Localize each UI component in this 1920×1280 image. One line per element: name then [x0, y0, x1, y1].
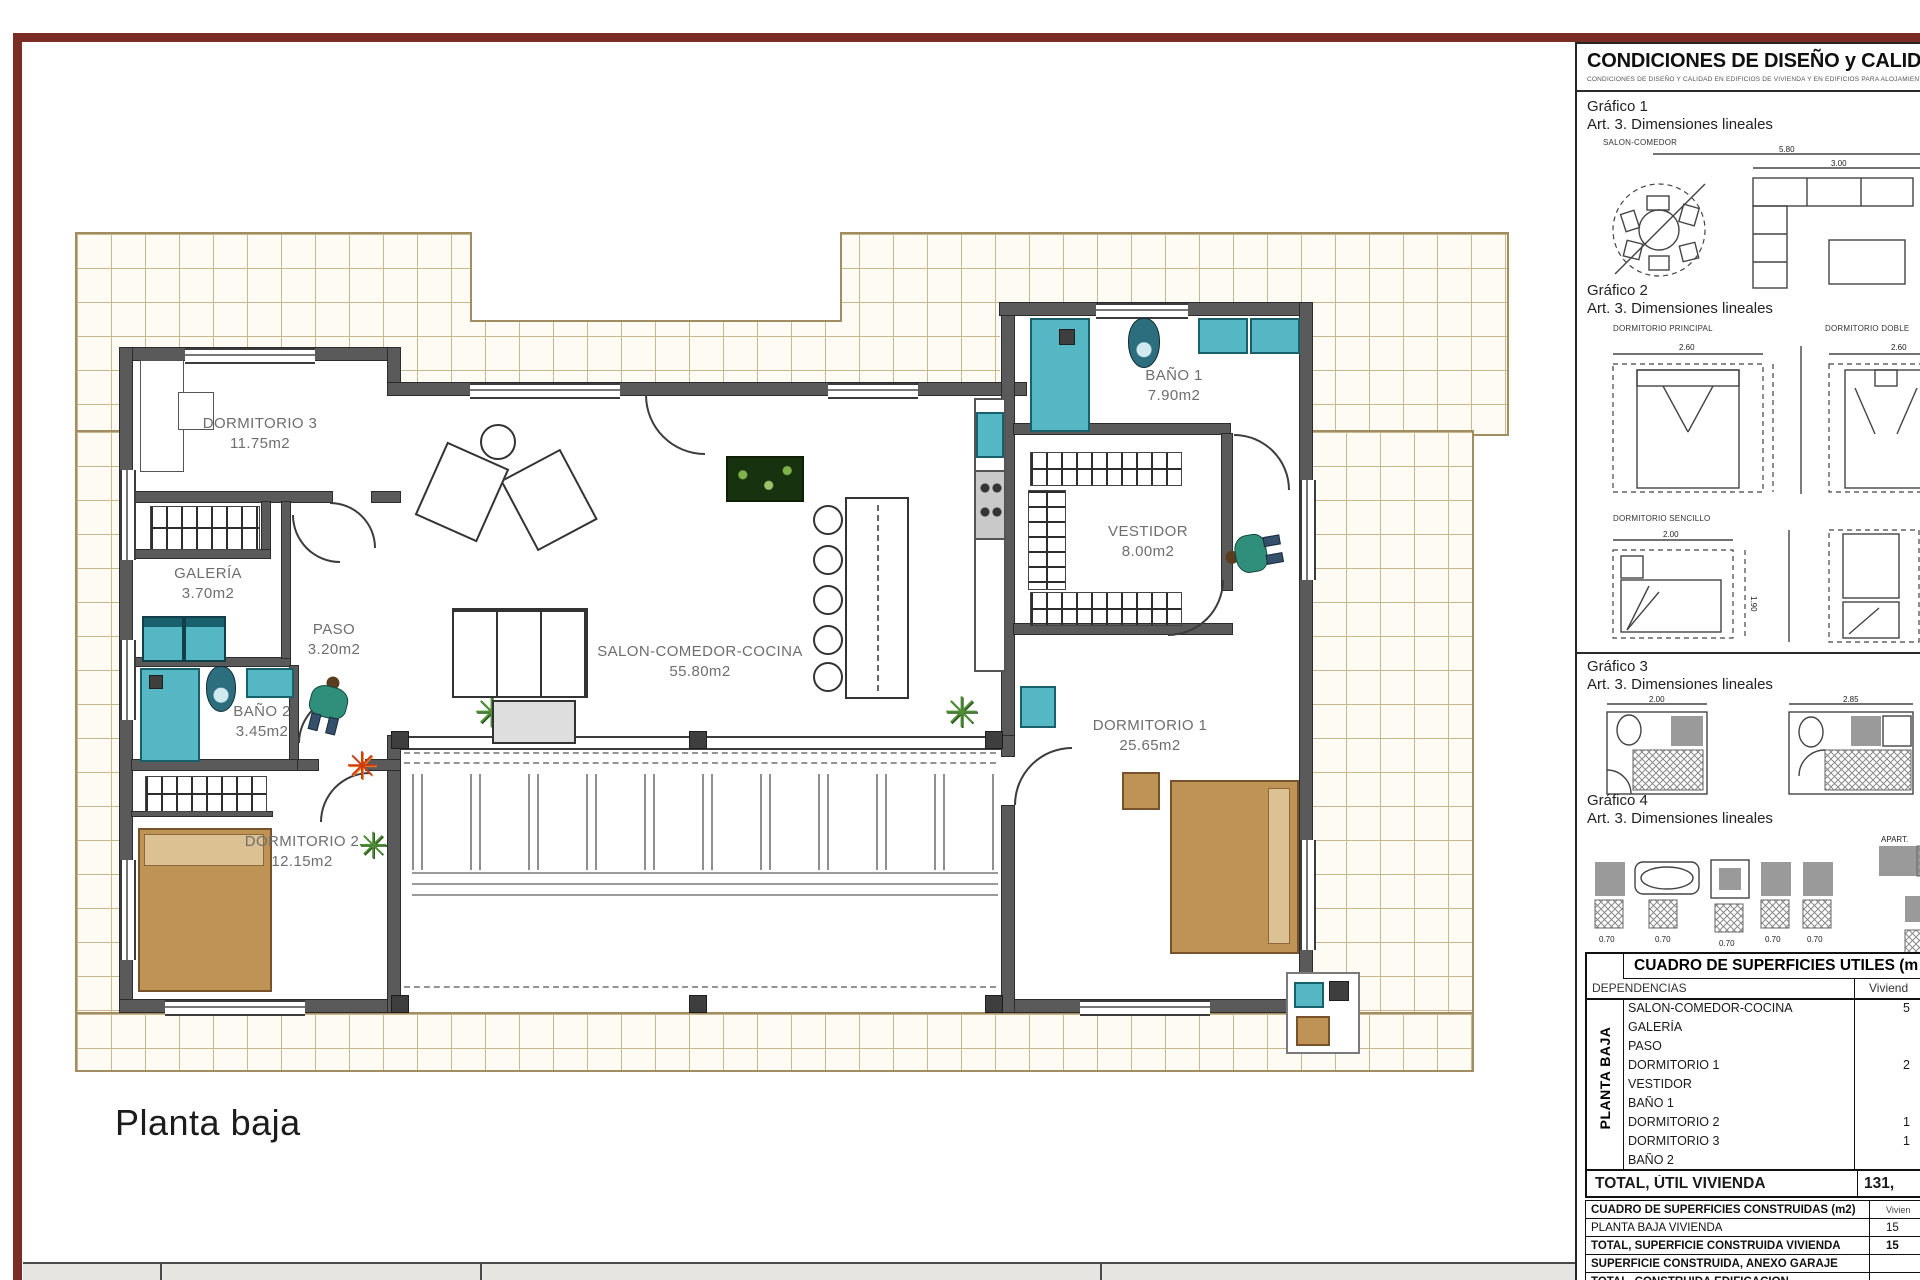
row-label: PLANTA BAJA VIVIENDA: [1586, 1222, 1869, 1234]
table-total-row: TOTAL, ÚTIL VIVIENDA 131,: [1587, 1169, 1920, 1196]
wall: [132, 550, 270, 558]
closet-hangers: [1030, 452, 1182, 486]
total-value: 131,: [1857, 1171, 1920, 1196]
group-label: PLANTA BAJA: [1597, 1000, 1613, 1156]
grafico-1-heading: Gráfico 1: [1587, 98, 1648, 115]
row-value: [1854, 1036, 1920, 1055]
person-leg: [1262, 534, 1280, 547]
window: [185, 348, 315, 364]
row-label: TOTAL, CONSTRUIDA EDIFICACIÓN: [1586, 1276, 1869, 1280]
dryer: [184, 616, 226, 662]
room-name: PASO: [308, 620, 360, 640]
sink: [1250, 318, 1300, 354]
pergola-dashed-line: [404, 752, 996, 754]
dim-label: 2.60: [1679, 343, 1695, 352]
grafico-4-sub: Art. 3. Dimensiones lineales: [1587, 810, 1773, 827]
room-name: DORMITORIO 2: [245, 832, 360, 852]
grafico-3-heading: Gráfico 3: [1587, 658, 1648, 675]
room-label-bano-1: BAÑO 1 7.90m2: [1145, 366, 1202, 407]
table-row: BAÑO 1: [1623, 1093, 1920, 1112]
planter-box: [726, 456, 804, 502]
stool: [813, 625, 843, 655]
washer: [142, 616, 184, 662]
grafico-3-sub: Art. 3. Dimensiones lineales: [1587, 676, 1773, 693]
window: [1300, 840, 1316, 950]
table-row: GALERÍA: [1623, 1017, 1920, 1036]
table-superficies-utiles: CUADRO DE SUPERFICIES UTILES (m DEPENDEN…: [1585, 952, 1920, 1198]
table-row: SUPERFICIE CONSTRUIDA, ANEXO GARAJE: [1586, 1254, 1920, 1272]
dim-label: 5.80: [1779, 145, 1795, 154]
room-area: 3.20m2: [308, 640, 360, 660]
table-title: CUADRO DE SUPERFICIES UTILES (m: [1623, 954, 1920, 979]
terrace-tiles-bottom: [75, 1012, 1474, 1072]
room-area: 3.45m2: [233, 722, 290, 742]
toilet: [1128, 318, 1160, 368]
window: [470, 383, 620, 399]
wall: [1002, 736, 1014, 756]
row-label: SALON-COMEDOR-COCINA: [1623, 1001, 1854, 1015]
window: [1080, 1000, 1210, 1016]
kitchen-island: [845, 497, 909, 699]
table-row: BAÑO 2: [1623, 1150, 1920, 1169]
panel-title: CONDICIONES DE DISEÑO y CALIDAD (DC-0: [1587, 50, 1920, 73]
total-label: TOTAL, ÚTIL VIVIENDA: [1587, 1175, 1857, 1193]
title-block-strip: [23, 1262, 1575, 1280]
table-title: CUADRO DE SUPERFICIES CONSTRUIDAS (m2): [1586, 1204, 1869, 1216]
island-centerline: [877, 505, 879, 691]
row-label: GALERÍA: [1623, 1020, 1854, 1034]
person-leg: [325, 717, 339, 736]
flower-decoration: ✳: [346, 748, 378, 786]
window: [120, 860, 136, 960]
room-label-bano-2: BAÑO 2 3.45m2: [233, 702, 290, 743]
dim-label: 0.70: [1599, 935, 1615, 944]
col-vivienda: Vivien: [1869, 1201, 1920, 1218]
sink: [1198, 318, 1248, 354]
table-row: DORMITORIO 12: [1623, 1055, 1920, 1074]
stove: [974, 470, 1006, 540]
row-value: [1854, 1150, 1920, 1169]
row-label: VESTIDOR: [1623, 1077, 1854, 1091]
person-leg: [308, 712, 322, 731]
shower: [140, 668, 200, 762]
row-value: 1: [1854, 1112, 1920, 1131]
row-label: DORMITORIO 2: [1623, 1115, 1854, 1129]
pergola-beams: [412, 774, 998, 870]
dim-label: 1.90: [1749, 596, 1758, 612]
grafico-2-label-principal: DORMITORIO PRINCIPAL: [1613, 324, 1713, 333]
room-label-salon: SALON-COMEDOR-COCINA 55.80m2: [597, 642, 803, 683]
row-value: [1869, 1273, 1920, 1280]
water-heater: [1020, 686, 1056, 728]
bbq-sink: [1294, 982, 1324, 1008]
dim-label: 0.70: [1807, 935, 1823, 944]
dim-label: APART.: [1881, 835, 1908, 844]
row-label: BAÑO 2: [1623, 1153, 1854, 1167]
kitchen-sink: [976, 412, 1004, 458]
stool: [813, 505, 843, 535]
floor-title: Planta baja: [115, 1102, 301, 1144]
row-value: [1854, 1017, 1920, 1036]
room-label-dormitorio-3: DORMITORIO 3 11.75m2: [203, 414, 318, 455]
col-vivienda: Viviend: [1854, 978, 1920, 998]
room-name: GALERÍA: [174, 564, 242, 584]
drawing-sheet: ✳ ✳ ✳ ✳ DORMITORIO 3 11.75m2 GALERÍA 3.7…: [0, 0, 1920, 1280]
bbq-grill: [1330, 982, 1348, 1000]
porch-pillar: [986, 732, 1002, 748]
sheet-border-top: [13, 33, 1920, 42]
dim-label: 0.70: [1719, 939, 1735, 948]
group-cell: PLANTA BAJA: [1587, 998, 1624, 1169]
room-name: BAÑO 1: [1145, 366, 1202, 386]
bbq-counter: [1296, 1016, 1330, 1046]
table-row: DORMITORIO 31: [1623, 1131, 1920, 1150]
room-area: 7.90m2: [1145, 386, 1202, 406]
window: [120, 640, 136, 720]
panel-subtitle: CONDICIONES DE DISEÑO Y CALIDAD EN EDIFI…: [1587, 76, 1920, 83]
room-name: VESTIDOR: [1108, 522, 1188, 542]
pergola-dashed-line: [404, 762, 996, 764]
porch-pillar: [392, 996, 408, 1012]
sofa: [452, 608, 588, 698]
coffee-table: [492, 700, 576, 744]
room-name: DORMITORIO 1: [1093, 716, 1208, 736]
table-body: SALON-COMEDOR-COCINA5 GALERÍA PASO DORMI…: [1623, 998, 1920, 1169]
shower-drain: [1060, 330, 1074, 344]
stool: [813, 585, 843, 615]
room-label-dormitorio-1: DORMITORIO 1 25.65m2: [1093, 716, 1208, 757]
room-area: 25.65m2: [1093, 736, 1208, 756]
closet-hangers: [1030, 592, 1182, 626]
room-label-paso: PASO 3.20m2: [308, 620, 360, 661]
porch-pillar: [690, 996, 706, 1012]
plant-icon: ✳: [944, 692, 979, 734]
grafico-1-diagram: 5.80 3.00 2.60: [1593, 144, 1920, 294]
wall: [1002, 806, 1014, 1012]
col-dependencias: DEPENDENCIAS: [1587, 981, 1854, 995]
closet-hangers: [145, 776, 267, 812]
grafico-2-diagram-bottom: 2.00 1.90 4.15: [1593, 526, 1920, 646]
window: [120, 470, 136, 560]
table-row: PLANTA BAJA VIVIENDA 15: [1586, 1218, 1920, 1236]
toilet: [206, 666, 236, 712]
grafico-3-diagram: 2.00 2.85: [1593, 696, 1920, 800]
row-label: BAÑO 1: [1623, 1096, 1854, 1110]
window: [1300, 480, 1316, 580]
dim-label: 2.85: [1843, 696, 1859, 704]
porch-edge-dashed: [404, 986, 996, 988]
row-value: 15: [1869, 1219, 1920, 1236]
wall: [388, 736, 400, 1012]
stool: [813, 662, 843, 692]
grafico-2-diagram-top: 2.60 2.60: [1593, 336, 1920, 496]
dim-label: 2.60: [1891, 343, 1907, 352]
table-header-row: DEPENDENCIAS Viviend: [1587, 978, 1920, 1000]
dim-label: 3.00: [1831, 159, 1847, 168]
title-block-divider: [160, 1262, 162, 1280]
table-superficies-construidas: CUADRO DE SUPERFICIES CONSTRUIDAS (m2) V…: [1585, 1200, 1920, 1280]
grafico-2-label-sencillo: DORMITORIO SENCILLO: [1613, 514, 1710, 523]
closet-hangers: [150, 506, 260, 550]
table-row: DORMITORIO 21: [1623, 1112, 1920, 1131]
row-value: [1854, 1093, 1920, 1112]
room-name: BAÑO 2: [233, 702, 290, 722]
window: [1096, 303, 1188, 319]
porch-pillar: [392, 732, 408, 748]
sink: [246, 668, 294, 698]
terrace-tiles-left: [75, 430, 126, 1072]
terrace-notch: [470, 232, 842, 322]
shower-drain: [150, 676, 162, 688]
room-area: 55.80m2: [597, 662, 803, 682]
wall: [298, 760, 318, 770]
person-leg: [1266, 552, 1284, 565]
room-label-vestidor: VESTIDOR 8.00m2: [1108, 522, 1188, 563]
plant-icon: ✳: [358, 828, 388, 864]
table-row: CUADRO DE SUPERFICIES CONSTRUIDAS (m2) V…: [1586, 1201, 1920, 1218]
table-row: SALON-COMEDOR-COCINA5: [1623, 998, 1920, 1017]
dim-label: 0.70: [1765, 935, 1781, 944]
table-row: TOTAL, CONSTRUIDA EDIFICACIÓN: [1586, 1272, 1920, 1280]
row-label: DORMITORIO 1: [1623, 1058, 1854, 1072]
bed-pillows: [1268, 788, 1290, 944]
room-area: 8.00m2: [1108, 542, 1188, 562]
porch-steps: [412, 872, 998, 896]
room-name: DORMITORIO 3: [203, 414, 318, 434]
room-name: SALON-COMEDOR-COCINA: [597, 642, 803, 662]
grafico-2-heading: Gráfico 2: [1587, 282, 1648, 299]
room-area: 3.70m2: [174, 584, 242, 604]
table-row: VESTIDOR: [1623, 1074, 1920, 1093]
room-area: 11.75m2: [203, 434, 318, 454]
dim-label: 2.00: [1663, 530, 1679, 539]
nightstand: [1122, 772, 1160, 810]
dim-label: 2.00: [1649, 696, 1665, 704]
room-area: 12.15m2: [245, 852, 360, 872]
row-value: [1854, 1074, 1920, 1093]
table-row: PASO: [1623, 1036, 1920, 1055]
stool: [813, 545, 843, 575]
grafico-2-sub: Art. 3. Dimensiones lineales: [1587, 300, 1773, 317]
wall: [132, 492, 332, 502]
grafico-1-sub: Art. 3. Dimensiones lineales: [1587, 116, 1773, 133]
row-value: 15: [1869, 1237, 1920, 1254]
wall: [132, 812, 272, 816]
table-row: TOTAL, SUPERFICIE CONSTRUIDA VIVIENDA 15: [1586, 1236, 1920, 1254]
porch-pillar: [986, 996, 1002, 1012]
side-table: [480, 424, 516, 460]
row-label: DORMITORIO 3: [1623, 1134, 1854, 1148]
grafico-4-heading: Gráfico 4: [1587, 792, 1648, 809]
row-value: 1: [1854, 1131, 1920, 1150]
row-label: SUPERFICIE CONSTRUIDA, ANEXO GARAJE: [1586, 1258, 1869, 1270]
wall: [372, 492, 400, 502]
panel-divider: [1577, 652, 1920, 654]
row-label: TOTAL, SUPERFICIE CONSTRUIDA VIVIENDA: [1586, 1240, 1869, 1252]
row-label: PASO: [1623, 1039, 1854, 1053]
wall: [282, 502, 290, 658]
grafico-2-label-doble: DORMITORIO DOBLE: [1825, 324, 1909, 333]
room-label-galeria: GALERÍA 3.70m2: [174, 564, 242, 605]
row-value: 5: [1854, 998, 1920, 1017]
window: [165, 1000, 305, 1016]
dim-label: 0.70: [1655, 935, 1671, 944]
window: [828, 383, 918, 399]
row-value: 2: [1854, 1055, 1920, 1074]
panel-divider: [1577, 90, 1920, 92]
title-block-divider: [1100, 1262, 1102, 1280]
room-label-dormitorio-2: DORMITORIO 2 12.15m2: [245, 832, 360, 873]
closet-hangers: [1028, 490, 1066, 590]
porch-pillar: [690, 732, 706, 748]
sheet-border-left: [13, 33, 22, 1280]
row-value: [1869, 1255, 1920, 1272]
title-block-divider: [480, 1262, 482, 1280]
conditions-panel: CONDICIONES DE DISEÑO y CALIDAD (DC-0 CO…: [1575, 42, 1920, 1280]
